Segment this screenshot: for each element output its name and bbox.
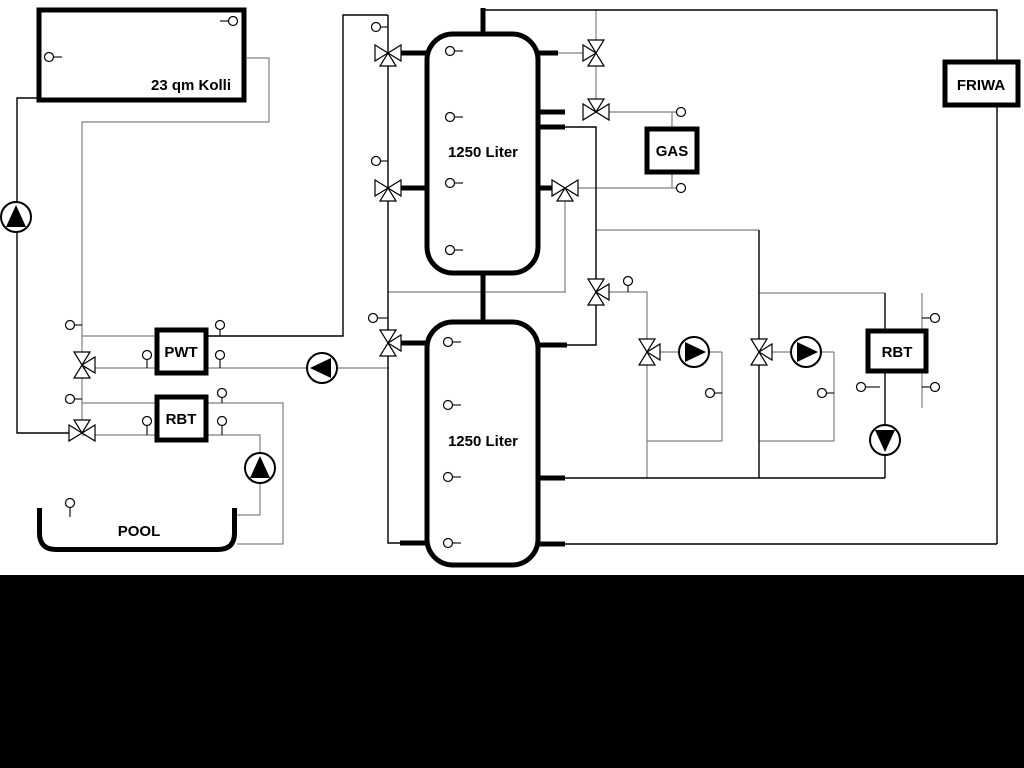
footer-bar (0, 575, 1024, 768)
valve-tank2-top-left (380, 330, 401, 356)
tank1-label: 1250 Liter (448, 144, 518, 161)
temp-sensor (143, 351, 152, 369)
circuit1-pump (679, 337, 709, 367)
temp-sensor (218, 417, 227, 436)
temp-sensor (218, 389, 227, 404)
temp-sensor (706, 389, 723, 398)
pool-pump (245, 453, 275, 483)
valve-pool-rbt (69, 420, 95, 441)
temp-sensor (216, 321, 225, 337)
valve-circuit2 (751, 339, 772, 365)
temp-sensor (624, 277, 633, 293)
temp-sensor (677, 108, 686, 117)
valve-gas-return (552, 180, 578, 201)
gas-label: GAS (656, 143, 689, 160)
temp-sensor (922, 383, 940, 392)
valve-gas-supply (583, 99, 609, 120)
friwa-label: FRIWA (957, 77, 1005, 94)
temp-sensor (372, 157, 389, 166)
friwa-supply-loop (483, 10, 997, 544)
pool-label: POOL (118, 523, 161, 540)
temp-sensor (369, 314, 389, 323)
valve-pwt (74, 352, 95, 378)
temp-sensor (372, 23, 389, 32)
tank1-midport-drop (565, 127, 596, 292)
temp-sensor (66, 321, 83, 330)
pwt-label: PWT (164, 344, 197, 361)
temp-sensor (66, 395, 83, 404)
temp-sensor (922, 314, 940, 323)
valve-tank1-top-right (583, 40, 604, 66)
hydraulic-schematic: 23 qm Kolli 1250 Liter 1250 Liter GAS FR… (0, 0, 1024, 768)
valve-circuit1 (639, 339, 660, 365)
rbt-right-label: RBT (882, 344, 913, 361)
circuit1-supply-pipe (609, 292, 647, 478)
temp-sensor (143, 417, 152, 436)
pwt-charge-pump (307, 353, 337, 383)
rbt-left-label: RBT (166, 411, 197, 428)
solar-pump (1, 202, 31, 232)
temp-sensor (818, 389, 835, 398)
circuit2-pump (791, 337, 821, 367)
rbt2-pump (870, 425, 900, 455)
temp-sensor (677, 184, 686, 193)
temp-sensor (857, 383, 881, 392)
collector-return-pipe (82, 58, 269, 365)
collector-flow-pipe (17, 98, 69, 433)
valve-tank2-feed (588, 279, 609, 305)
tank2-label: 1250 Liter (448, 433, 518, 450)
temp-sensor (216, 351, 225, 369)
gas-supply-pipe (609, 112, 676, 129)
solar-tank-riser (388, 15, 402, 543)
collector-label: 23 qm Kolli (151, 77, 231, 94)
